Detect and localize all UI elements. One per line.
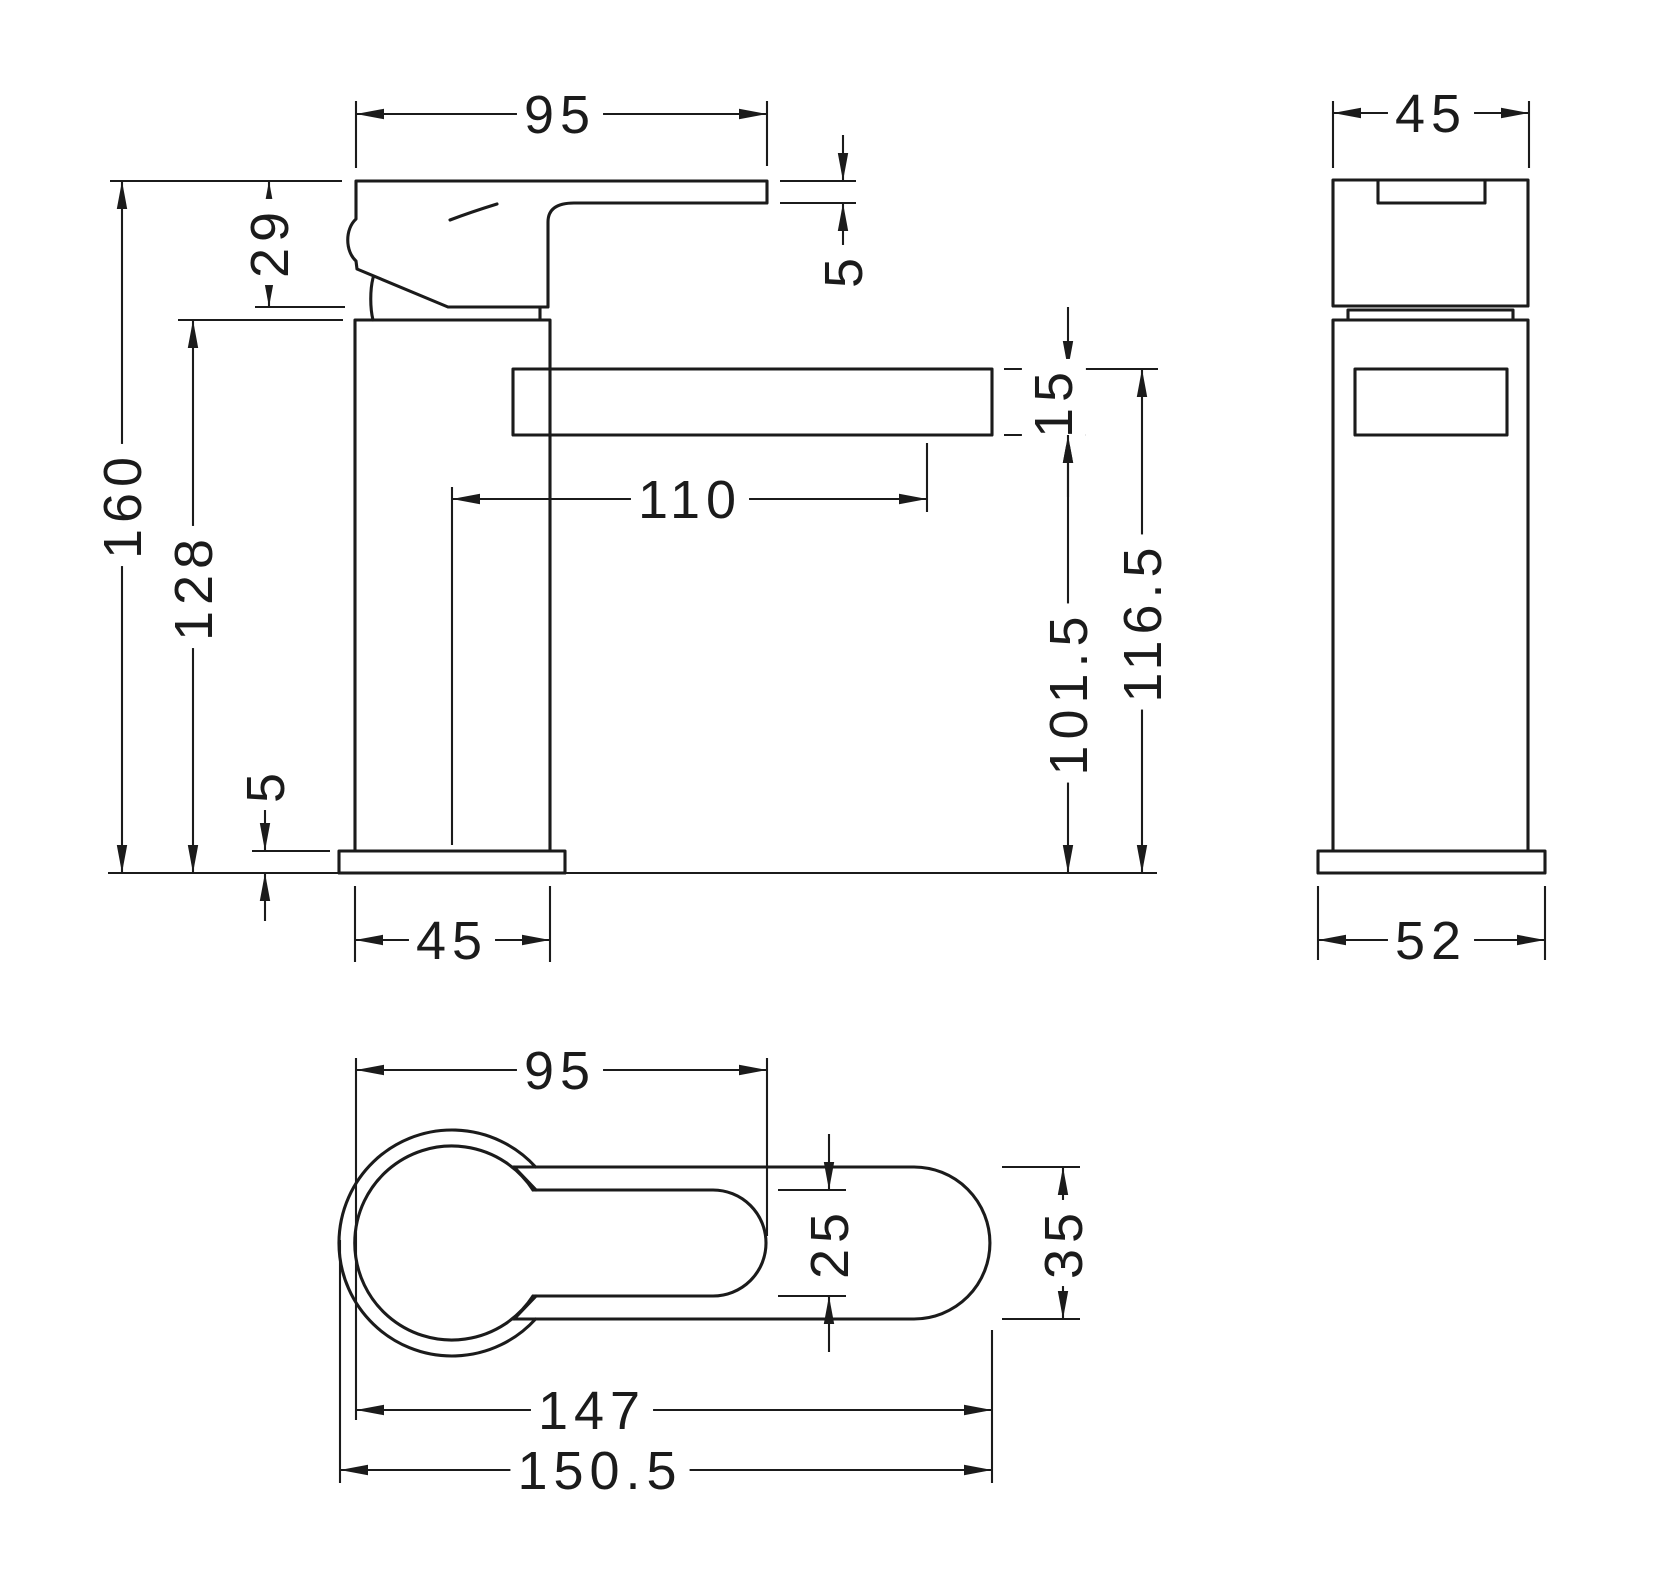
- svg-text:150.5: 150.5: [517, 1441, 682, 1501]
- side-lever-handle-outline: [348, 181, 767, 307]
- dimension-side-view-29: 29: [110, 181, 345, 307]
- dim-label: 52: [1388, 909, 1474, 973]
- svg-text:147: 147: [538, 1381, 646, 1441]
- dimension-side-view-5: 5: [780, 135, 876, 295]
- svg-text:52: 52: [1395, 911, 1467, 971]
- dim-label: 35: [1032, 1200, 1096, 1286]
- side-base-plate: [339, 851, 565, 873]
- front-view: [1318, 180, 1545, 873]
- dimension-side-view-160: 160: [91, 181, 155, 873]
- svg-text:35: 35: [1034, 1207, 1094, 1279]
- dimension-top-view-35: 35: [1002, 1167, 1096, 1319]
- dim-label: 150.5: [510, 1439, 689, 1503]
- svg-text:116.5: 116.5: [1113, 541, 1173, 702]
- svg-text:95: 95: [524, 1041, 596, 1101]
- dim-label: 45: [409, 909, 495, 973]
- svg-text:45: 45: [416, 911, 488, 971]
- dimension-top-view-95: 95: [356, 1039, 767, 1420]
- dimension-side-view-101.5: 101.5: [1037, 435, 1101, 873]
- dimension-side-view-110: 110: [452, 443, 927, 532]
- svg-text:5: 5: [814, 252, 874, 288]
- svg-text:25: 25: [800, 1207, 860, 1279]
- dim-label: 95: [517, 1039, 603, 1103]
- top-view: [339, 1130, 990, 1356]
- dimension-top-view-150.5: 150.5: [340, 1240, 992, 1503]
- dim-label: 25: [798, 1200, 862, 1286]
- front-handle-block: [1333, 180, 1528, 306]
- front-base-plate: [1318, 851, 1545, 873]
- dim-label: 29: [238, 199, 302, 285]
- side-spout-bar: [513, 369, 992, 435]
- front-lever-blade-notch: [1378, 180, 1485, 203]
- side-lever-joint-curve: [450, 204, 497, 220]
- dim-label: 116.5: [1111, 534, 1175, 709]
- svg-text:160: 160: [93, 451, 153, 559]
- dim-label: 160: [91, 444, 155, 566]
- dim-label: 45: [1388, 82, 1474, 146]
- technical-drawing: 9552916012811015101.5116.554545529525351…: [0, 0, 1653, 1579]
- dimension-side-view-15: 15: [1004, 307, 1158, 497]
- drawing-page: 9552916012811015101.5116.554545529525351…: [0, 0, 1653, 1579]
- dimension-front-view-45: 45: [1333, 82, 1529, 168]
- top-body-circle: [355, 1146, 533, 1340]
- dimension-side-view-95: 95: [356, 83, 767, 168]
- svg-text:95: 95: [524, 85, 596, 145]
- dim-label: 110: [631, 468, 749, 532]
- dim-label: 5: [812, 245, 876, 295]
- svg-text:128: 128: [164, 533, 224, 641]
- dimension-side-view-5: 5: [234, 760, 330, 921]
- dimension-side-view-45: 45: [355, 886, 550, 973]
- svg-text:45: 45: [1395, 84, 1467, 144]
- dim-label: 5: [234, 760, 298, 810]
- dim-label: 101.5: [1037, 603, 1101, 782]
- dim-label: 95: [517, 83, 603, 147]
- dimensions-layer: 9552916012811015101.5116.554545529525351…: [91, 82, 1545, 1503]
- svg-text:15: 15: [1024, 366, 1084, 438]
- dimension-front-view-52: 52: [1318, 886, 1545, 973]
- top-lever-blade-outline: [533, 1190, 766, 1296]
- svg-text:5: 5: [236, 767, 296, 803]
- dim-label: 147: [531, 1379, 653, 1443]
- svg-text:29: 29: [240, 206, 300, 278]
- front-aerator-window: [1355, 369, 1507, 435]
- svg-text:110: 110: [638, 470, 742, 530]
- dim-label: 15: [1022, 359, 1086, 445]
- dim-label: 128: [162, 526, 226, 648]
- front-body-column: [1333, 320, 1528, 851]
- svg-text:101.5: 101.5: [1039, 610, 1099, 775]
- dimension-side-view-116.5: 116.5: [1111, 369, 1175, 873]
